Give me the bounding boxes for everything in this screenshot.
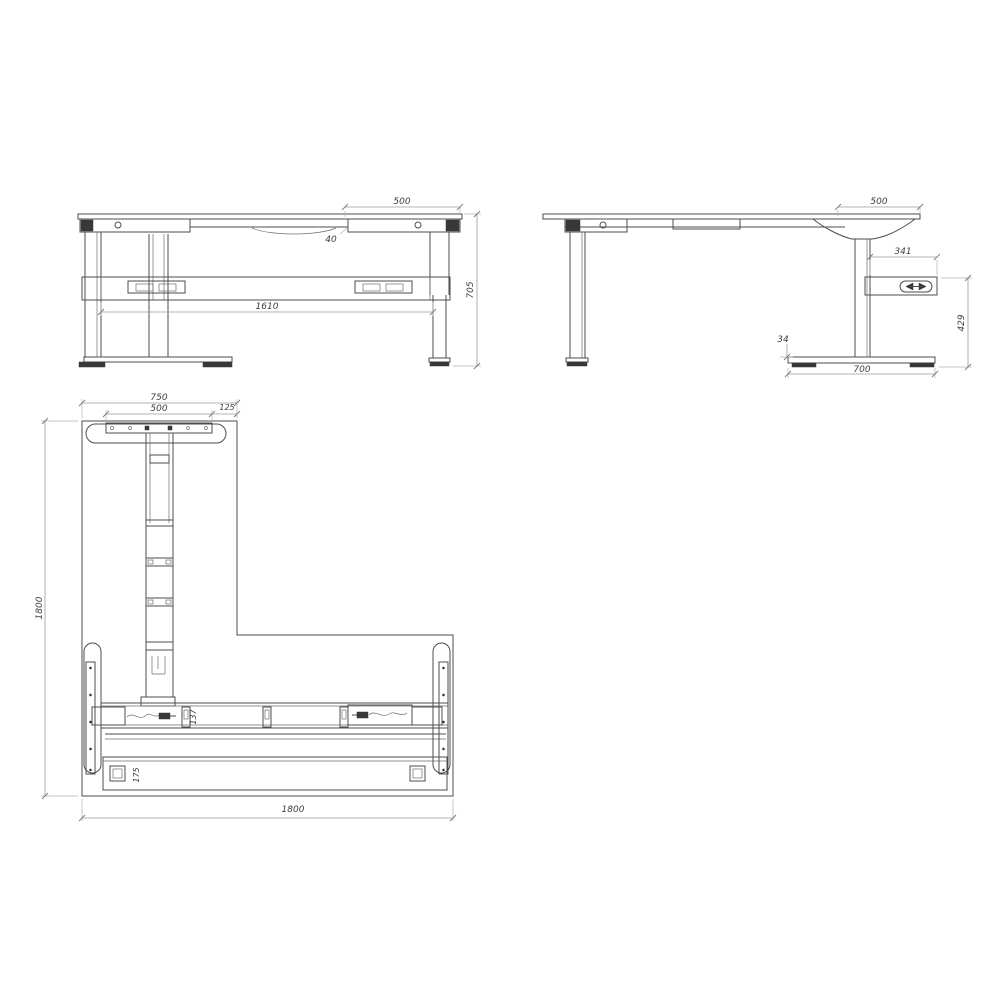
back-panel xyxy=(103,757,447,790)
foot-plate-front xyxy=(84,357,232,362)
leg-mount-bracket xyxy=(813,219,915,239)
corner-fitting xyxy=(81,220,93,231)
foot-pad xyxy=(792,363,816,367)
drawing-sheet: 500 40 1610 705 xyxy=(0,0,1000,1000)
dim-plan-beam-depth: 137 xyxy=(189,708,198,724)
foot-pad xyxy=(567,362,587,366)
screw-icon xyxy=(115,222,121,228)
screw-icon xyxy=(415,222,421,228)
dim-plan-return-depth: 750 xyxy=(150,393,167,403)
power-cable-icon xyxy=(369,713,407,716)
frame-bracket-left xyxy=(80,219,190,232)
dim-side-foot-thickness: 34 xyxy=(777,335,789,345)
dim-front-frame-thickness: 40 xyxy=(325,235,337,245)
front-view: 500 40 1610 705 xyxy=(78,197,481,369)
screw-icon xyxy=(205,427,208,430)
corner-fitting xyxy=(566,220,580,231)
foot-pad xyxy=(430,362,449,366)
dim-front-leg-span: 1610 xyxy=(256,302,279,312)
dim-plan-overall-width: 1800 xyxy=(282,805,305,815)
leg-mount-curve xyxy=(252,228,336,234)
dim-side-top-overhang: 500 xyxy=(870,197,887,207)
foot-plate-side xyxy=(788,357,935,363)
desk-top-outline xyxy=(82,421,453,796)
foot-pad xyxy=(79,362,105,367)
dim-plan-return-length: 1800 xyxy=(35,596,45,619)
dim-side-control-box-width: 341 xyxy=(894,247,911,257)
foot-pad xyxy=(203,362,232,367)
crossbar xyxy=(82,277,450,300)
dim-front-top-overhang: 500 xyxy=(393,197,410,207)
tabletop-front xyxy=(78,214,462,219)
corner-fitting xyxy=(446,220,459,231)
dim-plan-rail-depth: 175 xyxy=(132,767,141,782)
foot-pad xyxy=(910,363,934,367)
frame-bracket-right xyxy=(348,219,460,232)
power-cable-icon xyxy=(127,714,159,717)
dim-side-foot-depth: 700 xyxy=(853,365,870,375)
panel-bracket xyxy=(413,769,422,778)
technical-drawing: 500 40 1610 705 xyxy=(0,0,1000,1000)
dim-plan-plate-width: 500 xyxy=(150,404,167,414)
panel-bracket xyxy=(113,769,122,778)
cable-clip xyxy=(152,656,165,674)
tabletop-side xyxy=(543,214,920,219)
column-base xyxy=(141,697,175,706)
dim-side-underside-height: 429 xyxy=(957,314,967,331)
plan-view: 750 500 125 1800 137 175 1800 xyxy=(35,393,456,821)
dim-front-overall-height: 705 xyxy=(466,281,476,298)
side-view: 500 341 429 34 700 xyxy=(543,197,972,378)
dim-plan-edge-offset: 125 xyxy=(219,403,234,412)
